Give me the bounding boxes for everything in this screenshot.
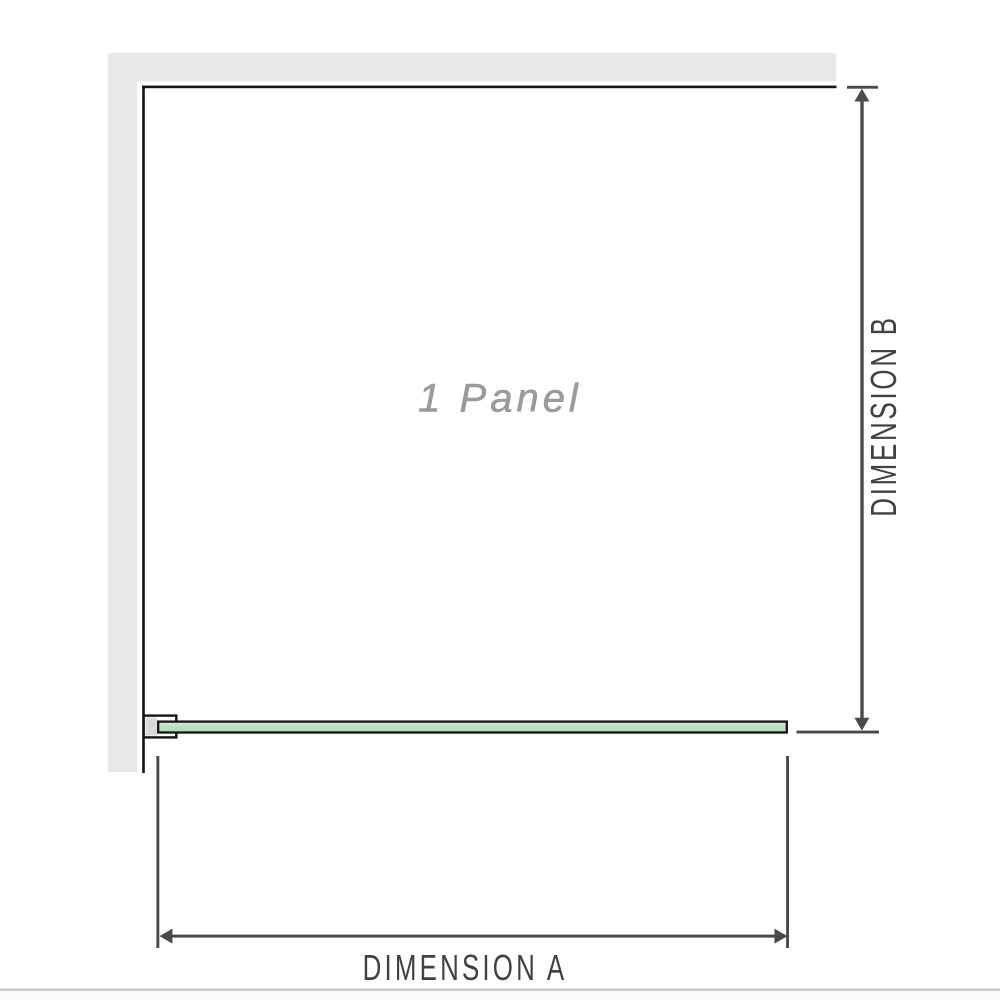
svg-text:DIMENSION A: DIMENSION A <box>363 948 568 988</box>
svg-text:DIMENSION B: DIMENSION B <box>864 315 904 516</box>
svg-text:1 Panel: 1 Panel <box>418 377 582 421</box>
